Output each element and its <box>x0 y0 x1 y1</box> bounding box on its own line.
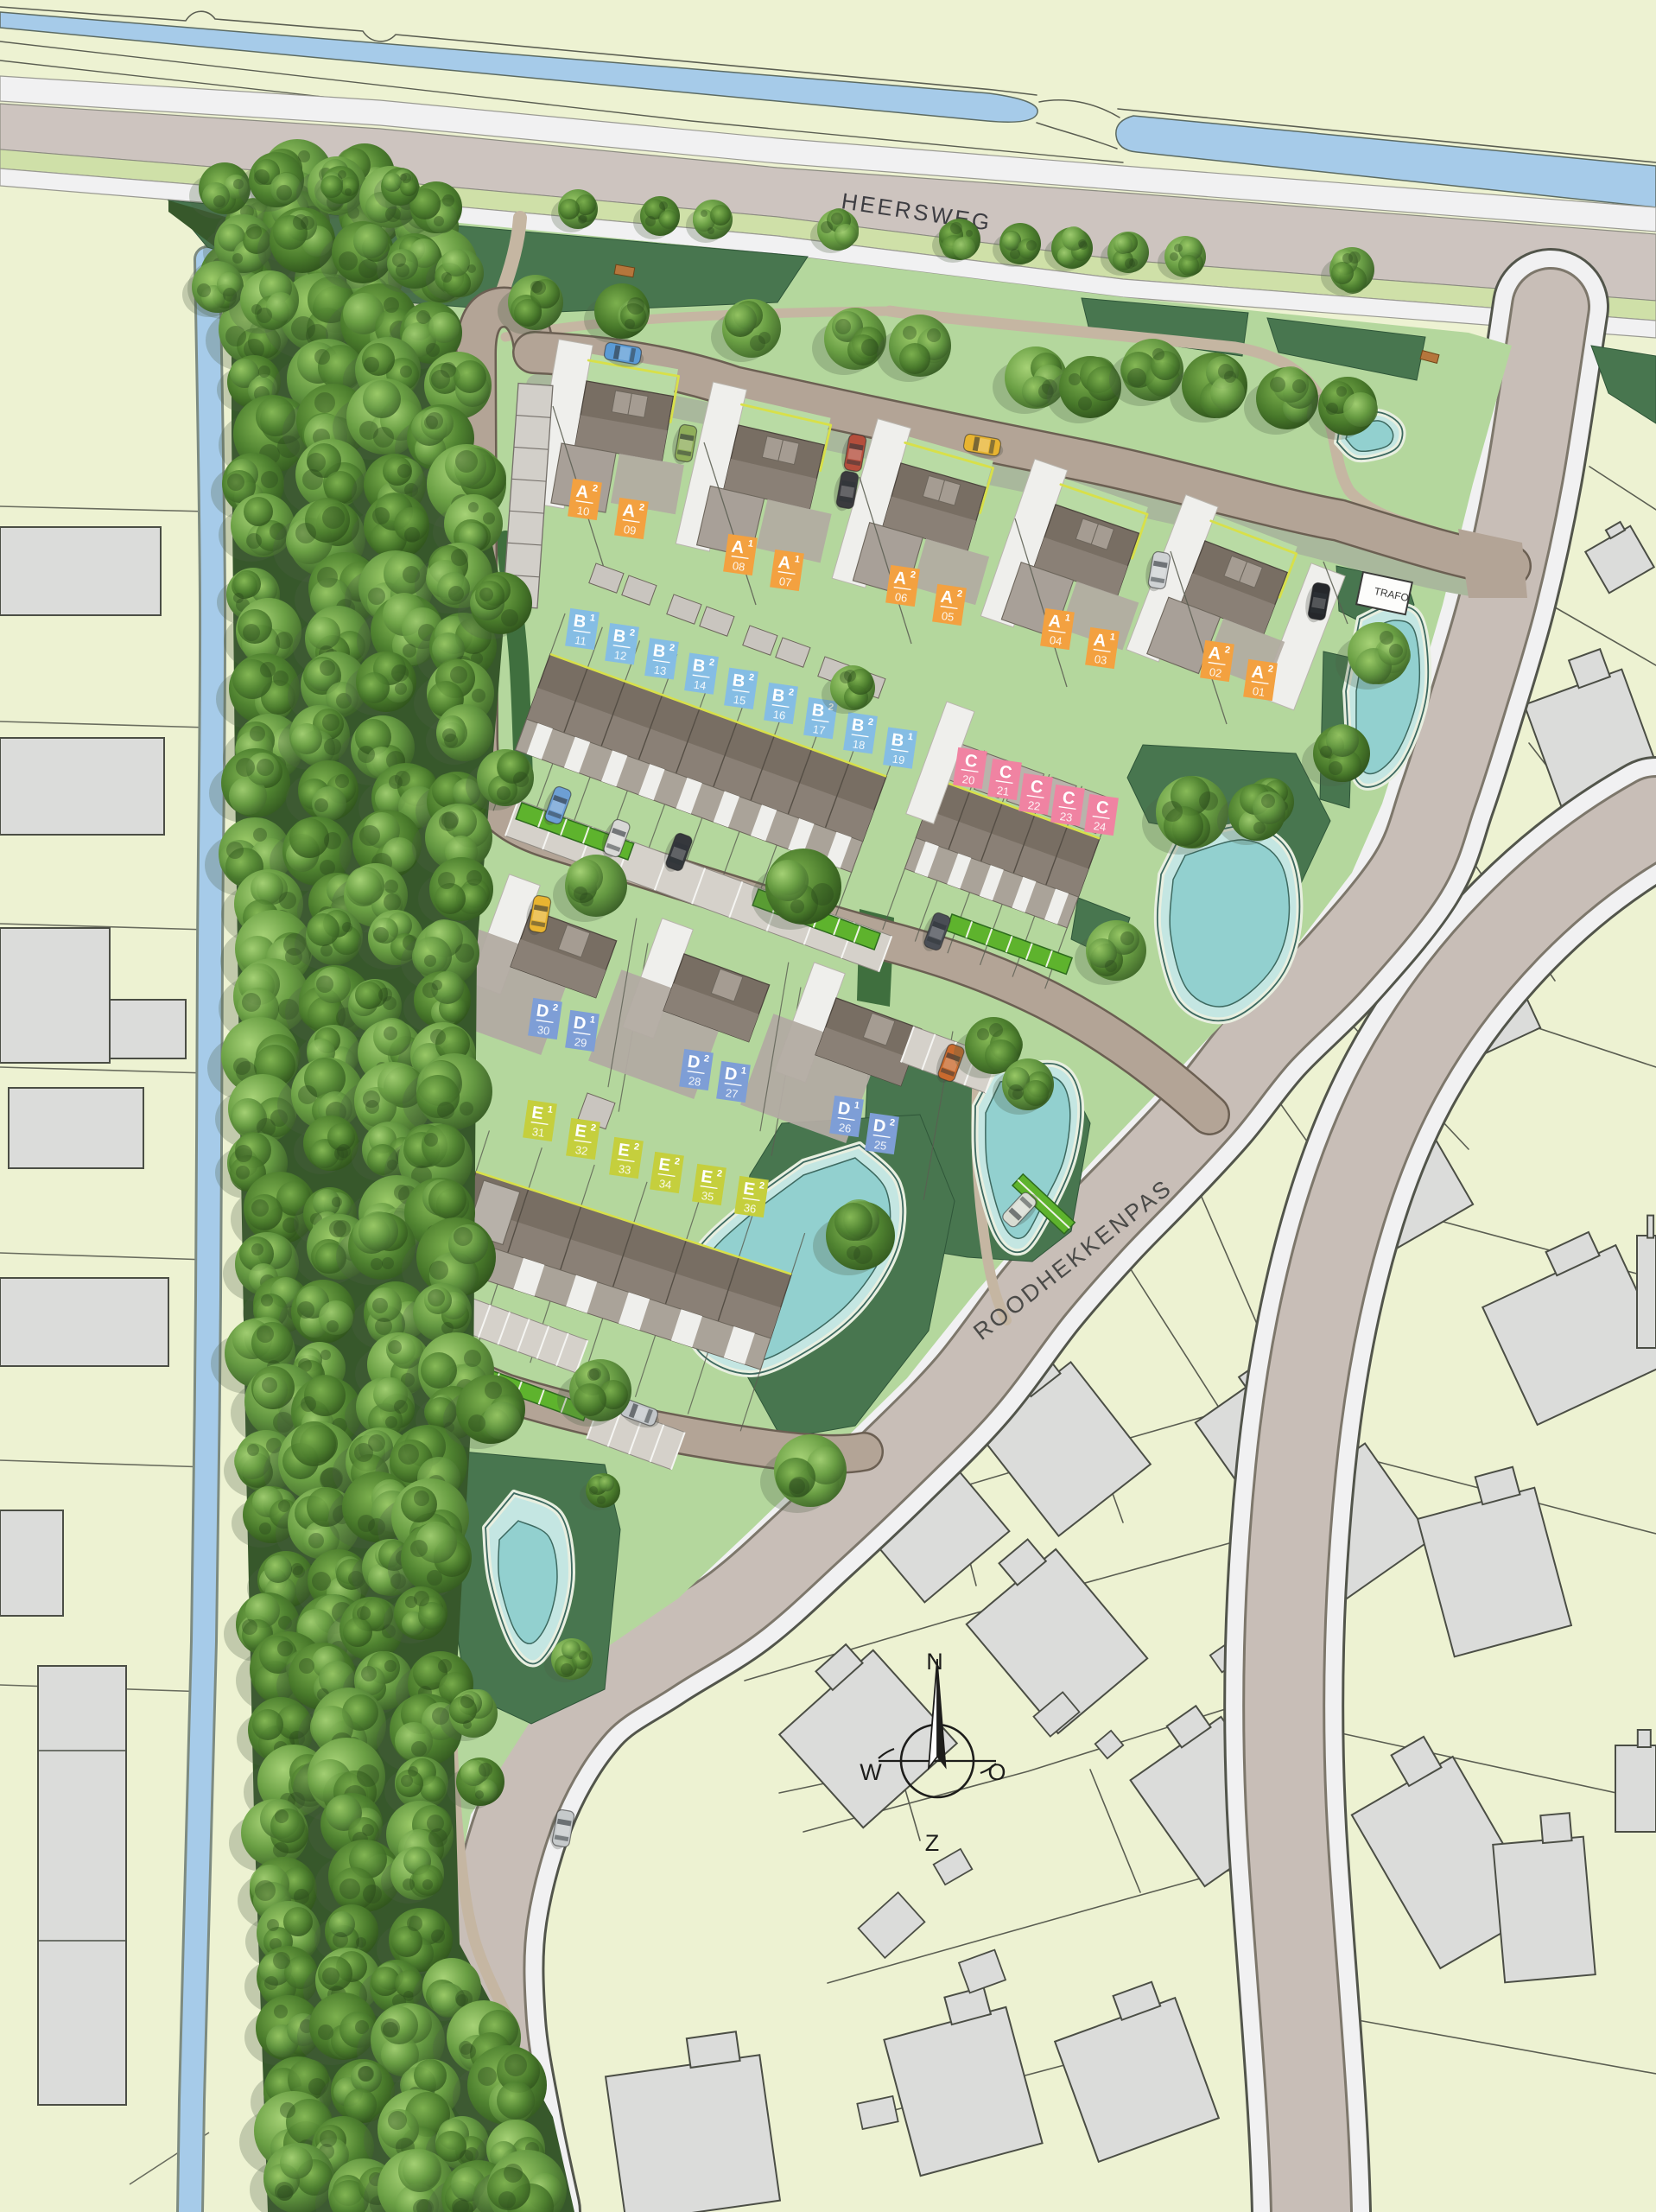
svg-text:23: 23 <box>1059 810 1073 824</box>
svg-text:28: 28 <box>688 1074 701 1089</box>
svg-text:B: B <box>651 641 666 662</box>
svg-text:26: 26 <box>838 1121 852 1135</box>
svg-text:D: D <box>535 1001 549 1022</box>
svg-text:D: D <box>572 1014 587 1034</box>
svg-text:A: A <box>1047 612 1062 632</box>
svg-text:B: B <box>771 686 785 707</box>
svg-text:A: A <box>1092 631 1107 652</box>
svg-text:11: 11 <box>574 633 587 648</box>
svg-text:D: D <box>723 1065 738 1085</box>
svg-text:03: 03 <box>1094 652 1107 667</box>
svg-text:07: 07 <box>778 575 792 589</box>
svg-text:B: B <box>850 715 865 736</box>
svg-text:32: 32 <box>574 1143 588 1158</box>
svg-text:24: 24 <box>1093 819 1107 834</box>
svg-text:31: 31 <box>531 1125 545 1140</box>
svg-text:N: N <box>926 1649 943 1675</box>
svg-text:29: 29 <box>574 1035 587 1050</box>
svg-text:A: A <box>892 569 907 589</box>
svg-text:D: D <box>686 1052 701 1073</box>
svg-text:B: B <box>731 671 746 691</box>
svg-text:A: A <box>730 537 745 558</box>
svg-text:B: B <box>612 626 626 647</box>
svg-text:21: 21 <box>996 784 1010 798</box>
svg-text:17: 17 <box>812 722 826 737</box>
svg-text:A: A <box>939 588 954 608</box>
svg-text:10: 10 <box>576 504 590 518</box>
svg-text:D: D <box>836 1099 851 1120</box>
svg-text:09: 09 <box>623 523 637 537</box>
svg-text:A: A <box>777 553 791 574</box>
svg-text:35: 35 <box>701 1189 714 1204</box>
svg-text:B: B <box>691 656 706 677</box>
svg-text:08: 08 <box>732 559 746 574</box>
svg-text:C: C <box>1094 798 1109 818</box>
svg-text:13: 13 <box>653 663 667 677</box>
svg-text:A: A <box>574 482 589 503</box>
svg-text:22: 22 <box>1027 798 1041 813</box>
svg-text:20: 20 <box>961 772 975 787</box>
svg-text:18: 18 <box>852 737 866 752</box>
svg-text:A: A <box>1250 663 1265 683</box>
svg-text:12: 12 <box>613 648 627 663</box>
svg-text:02: 02 <box>1209 665 1222 680</box>
svg-text:34: 34 <box>658 1177 672 1192</box>
svg-text:B: B <box>572 612 587 632</box>
svg-text:19: 19 <box>891 753 905 767</box>
svg-text:15: 15 <box>733 693 746 708</box>
svg-text:27: 27 <box>725 1086 739 1101</box>
svg-text:05: 05 <box>941 609 955 624</box>
svg-text:33: 33 <box>618 1162 631 1177</box>
svg-text:W: W <box>860 1759 882 1785</box>
svg-text:14: 14 <box>693 678 707 693</box>
svg-text:36: 36 <box>743 1201 757 1216</box>
svg-text:A: A <box>621 501 636 522</box>
svg-text:16: 16 <box>772 708 786 722</box>
svg-text:B: B <box>810 701 825 721</box>
svg-text:06: 06 <box>894 590 908 605</box>
svg-text:O: O <box>987 1759 1006 1785</box>
svg-text:C: C <box>1061 788 1075 809</box>
svg-text:D: D <box>872 1116 886 1137</box>
svg-text:C: C <box>998 762 1012 783</box>
svg-text:04: 04 <box>1049 633 1063 648</box>
svg-text:25: 25 <box>873 1138 887 1153</box>
svg-text:01: 01 <box>1252 684 1266 699</box>
svg-text:B: B <box>890 730 904 751</box>
svg-text:Z: Z <box>925 1830 940 1856</box>
svg-text:30: 30 <box>536 1023 550 1038</box>
svg-text:C: C <box>963 751 978 772</box>
svg-text:A: A <box>1207 644 1221 664</box>
svg-text:C: C <box>1029 777 1044 798</box>
